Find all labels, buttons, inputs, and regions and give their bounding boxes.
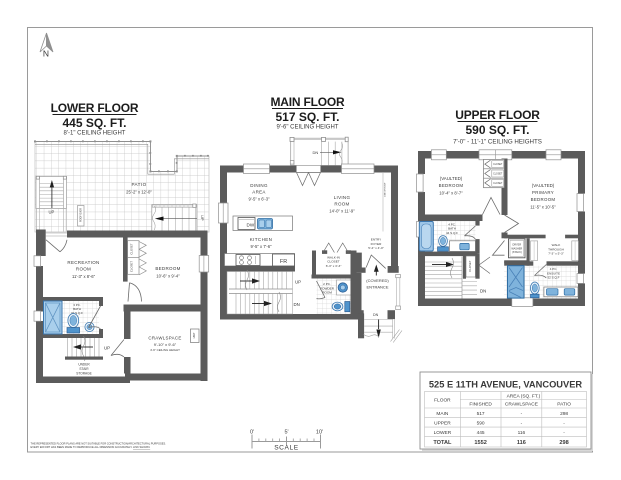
svg-text:TOTAL: TOTAL [433, 440, 452, 446]
svg-text:HWT: HWT [192, 332, 196, 338]
svg-text:DRYER: DRYER [512, 244, 521, 247]
svg-text:BEDROOM: BEDROOM [531, 197, 556, 202]
svg-text:KITCHEN: KITCHEN [250, 237, 273, 242]
svg-text:DN: DN [480, 289, 486, 294]
svg-text:FR: FR [280, 259, 287, 265]
svg-text:UP: UP [295, 280, 301, 285]
svg-text:(VAULTED): (VAULTED) [440, 176, 463, 181]
svg-text:BEDROOM: BEDROOM [155, 266, 180, 271]
svg-text:9'-5" x 7'-6": 9'-5" x 7'-6" [250, 244, 272, 249]
svg-text:9'-5" x 6'-3": 9'-5" x 6'-3" [248, 197, 270, 202]
svg-text:LOWER: LOWER [434, 430, 452, 436]
svg-text:10'-4" x 8'-7": 10'-4" x 8'-7" [439, 191, 463, 196]
svg-text:STAIR: STAIR [79, 367, 89, 371]
svg-text:RECREATION: RECREATION [67, 260, 99, 265]
svg-text:LIVING: LIVING [334, 195, 351, 200]
svg-text:11'-5" x 10'-5": 11'-5" x 10'-5" [530, 205, 556, 210]
svg-text:UPPER FLOOR: UPPER FLOOR [455, 108, 540, 122]
svg-text:LINE OF ROOF: LINE OF ROOF [385, 182, 387, 197]
svg-text:PRIMARY: PRIMARY [532, 190, 554, 195]
svg-text:298: 298 [560, 411, 568, 417]
svg-text:7'-0" - 11'-1" CEILING HEIGHTS: 7'-0" - 11'-1" CEILING HEIGHTS [453, 139, 542, 146]
svg-text:11'-3" x 8'-6": 11'-3" x 8'-6" [72, 274, 96, 279]
svg-text:SCALE: SCALE [274, 445, 299, 452]
svg-text:52 S.Q.F: 52 S.Q.F [547, 276, 559, 280]
svg-text:CRAWLSPACE: CRAWLSPACE [505, 402, 538, 408]
svg-text:AREA: AREA [252, 190, 265, 195]
svg-text:UP: UP [49, 210, 55, 215]
svg-text:DINING: DINING [250, 183, 268, 188]
svg-text:LOWER FLOOR: LOWER FLOOR [51, 101, 139, 115]
svg-text:CLOSET: CLOSET [129, 243, 133, 254]
svg-text:8'-1" CEILING HEIGHT: 8'-1" CEILING HEIGHT [64, 131, 126, 137]
svg-text:116: 116 [517, 440, 526, 446]
svg-text:PATIO: PATIO [131, 182, 146, 187]
svg-text:CLOSET: CLOSET [129, 261, 133, 272]
svg-text:EVERY EFFORT HAS BEEN MADE TO: EVERY EFFORT HAS BEEN MADE TO REPRODUCE … [31, 445, 151, 449]
svg-text:CLOSET: CLOSET [493, 164, 503, 166]
svg-text:DN: DN [373, 313, 379, 317]
svg-text:ROOM: ROOM [322, 291, 332, 295]
svg-text:525 E 11TH AVENUE, VANCOUVER: 525 E 11TH AVENUE, VANCOUVER [429, 380, 583, 390]
svg-text:ROOF OVER: ROOF OVER [81, 208, 83, 222]
svg-text:FLOOR: FLOOR [434, 398, 451, 404]
svg-text:517 SQ. FT.: 517 SQ. FT. [275, 110, 339, 124]
svg-text:ROOM: ROOM [334, 202, 349, 207]
svg-text:590 SQ. FT.: 590 SQ. FT. [465, 123, 529, 137]
svg-text:10'-6" x 9'-4": 10'-6" x 9'-4" [156, 274, 180, 279]
svg-text:5': 5' [284, 430, 288, 436]
svg-text:ENTRANCE: ENTRANCE [366, 285, 388, 290]
svg-text:7'-3" x 5'-3": 7'-3" x 5'-3" [548, 252, 564, 256]
svg-text:FINISHED: FINISHED [469, 402, 492, 408]
svg-text:(COVERED): (COVERED) [366, 278, 389, 283]
svg-text:14'-0" x 11'-9": 14'-0" x 11'-9" [329, 209, 355, 214]
svg-text:BEDROOM: BEDROOM [439, 183, 464, 188]
svg-text:(VAULTED): (VAULTED) [532, 183, 555, 188]
svg-text:STORAGE: STORAGE [76, 372, 92, 376]
svg-text:517: 517 [477, 411, 485, 417]
svg-text:CRAWLSPACE: CRAWLSPACE [148, 336, 181, 341]
svg-text:CLOSET: CLOSET [468, 260, 472, 271]
svg-text:MAIN FLOOR: MAIN FLOOR [271, 95, 346, 109]
svg-text:298: 298 [559, 440, 568, 446]
svg-text:44 S.Q.F: 44 S.Q.F [446, 231, 458, 235]
svg-text:DN: DN [294, 302, 300, 307]
svg-text:25'-2" x 12'-0": 25'-2" x 12'-0" [126, 190, 152, 195]
svg-text:590: 590 [477, 420, 485, 426]
svg-text:AREA (SQ. FT.): AREA (SQ. FT.) [507, 393, 541, 399]
svg-text:9'-6" CEILING HEIGHT: 9'-6" CEILING HEIGHT [277, 125, 339, 131]
svg-text:DN: DN [313, 150, 319, 155]
svg-text:UP: UP [104, 346, 110, 351]
svg-text:THE REPRESENTED FLOOR PLANS AR: THE REPRESENTED FLOOR PLANS ARE NOT SUIT… [31, 442, 167, 446]
svg-text:UNDER: UNDER [78, 363, 90, 367]
svg-text:(STACK): (STACK) [512, 251, 522, 254]
svg-text:N: N [43, 49, 49, 59]
svg-text:9'-10" x 9'-6": 9'-10" x 9'-6" [154, 342, 177, 347]
svg-text:MAIN: MAIN [436, 411, 449, 417]
svg-text:DW: DW [247, 223, 255, 228]
svg-text:UP: UP [200, 215, 205, 221]
svg-text:1552: 1552 [474, 440, 486, 446]
svg-text:4'-9" CEILING HEIGHT: 4'-9" CEILING HEIGHT [150, 348, 180, 352]
svg-text:WASHER: WASHER [511, 247, 522, 250]
svg-text:445: 445 [477, 430, 485, 436]
svg-text:UPPER: UPPER [434, 420, 451, 426]
svg-text:5'-4" x 4'-0": 5'-4" x 4'-0" [368, 246, 384, 250]
svg-text:CLOSET: CLOSET [493, 183, 503, 185]
svg-text:PATIO: PATIO [557, 402, 571, 408]
svg-text:10': 10' [316, 430, 323, 436]
svg-text:ROOM: ROOM [76, 267, 91, 272]
svg-text:116: 116 [518, 430, 526, 436]
svg-text:445 SQ. FT.: 445 SQ. FT. [62, 116, 126, 130]
svg-text:CLOSET: CLOSET [493, 173, 503, 175]
svg-text:6'-3" x 3'-3": 6'-3" x 3'-3" [326, 264, 342, 268]
